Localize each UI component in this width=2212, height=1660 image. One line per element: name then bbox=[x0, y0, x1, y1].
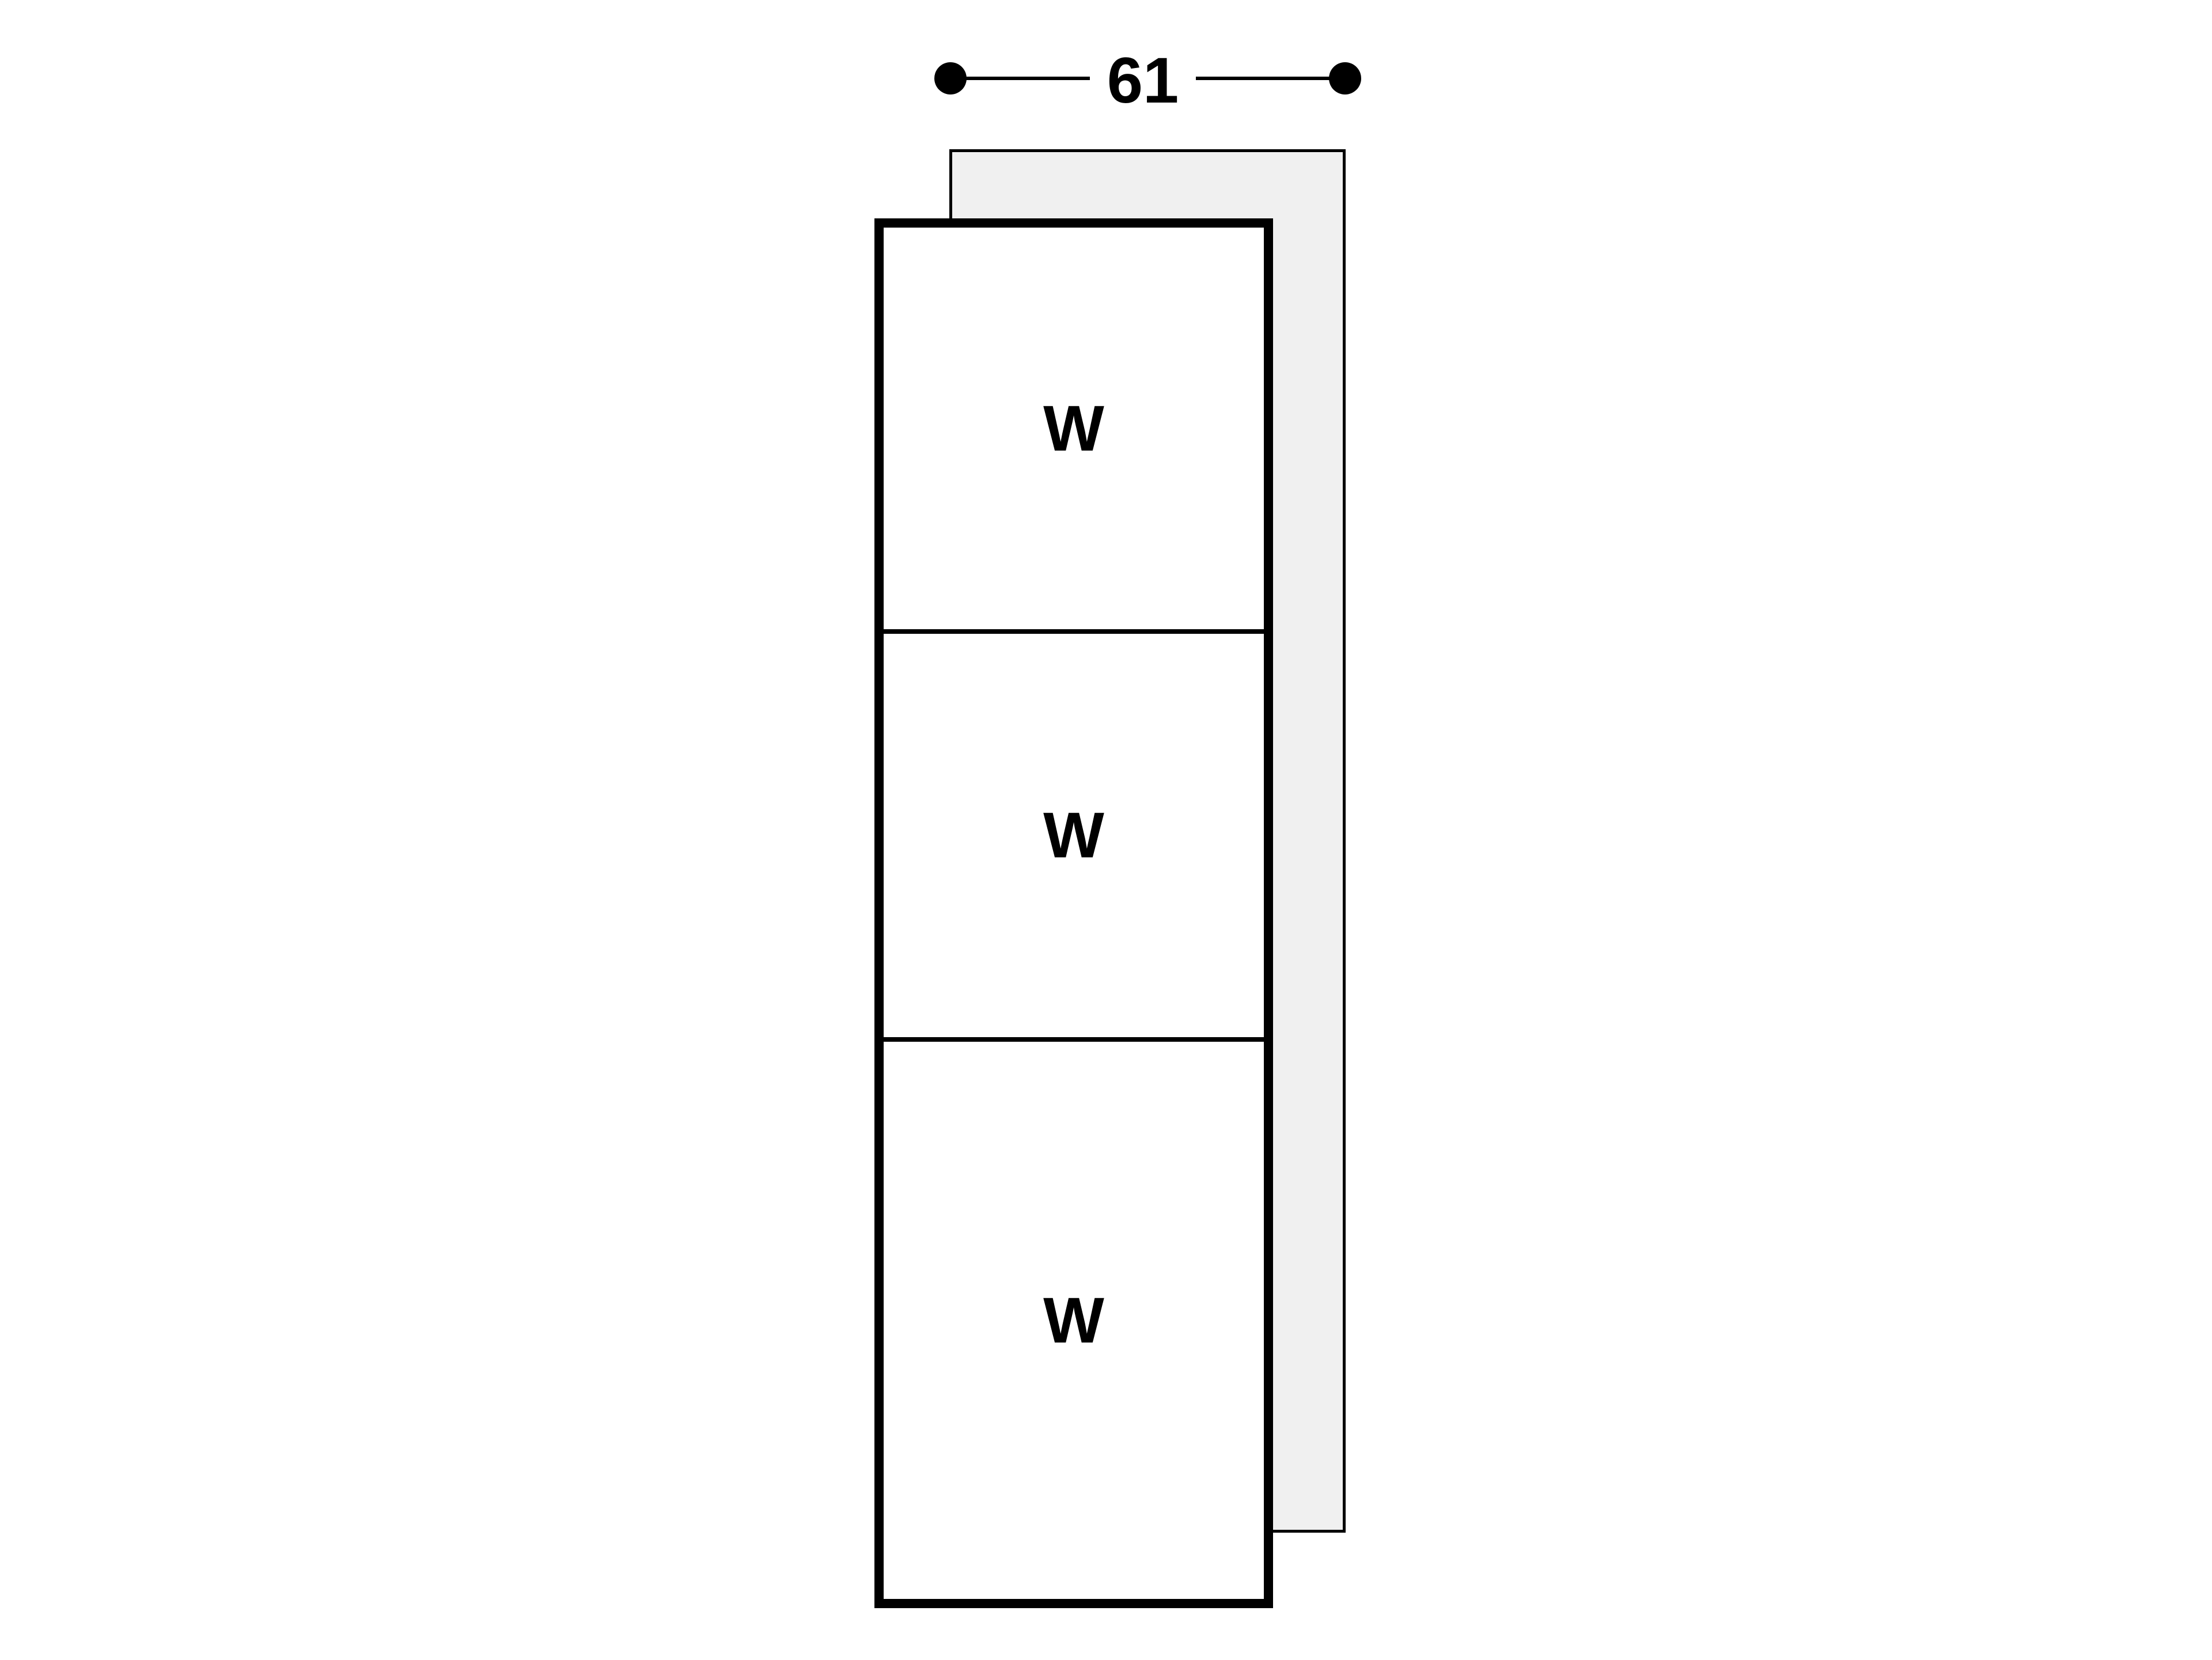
appliance-section-1: W bbox=[884, 228, 1264, 629]
dimension-line-right bbox=[1196, 77, 1345, 80]
appliance-section-2: W bbox=[884, 629, 1264, 1037]
appliance-section-3: W bbox=[884, 1037, 1264, 1599]
installation-diagram: 61 W W W bbox=[0, 0, 2212, 1660]
dimension-value: 61 bbox=[1107, 48, 1179, 113]
appliance-width-label-3: W bbox=[1043, 1288, 1104, 1353]
dimension-endpoint-dot-right bbox=[1329, 62, 1361, 94]
dimension-line-left bbox=[950, 77, 1090, 80]
appliance-stack-rect: W W W bbox=[874, 218, 1273, 1608]
appliance-width-label-2: W bbox=[1043, 803, 1104, 868]
appliance-width-label-1: W bbox=[1043, 396, 1104, 461]
